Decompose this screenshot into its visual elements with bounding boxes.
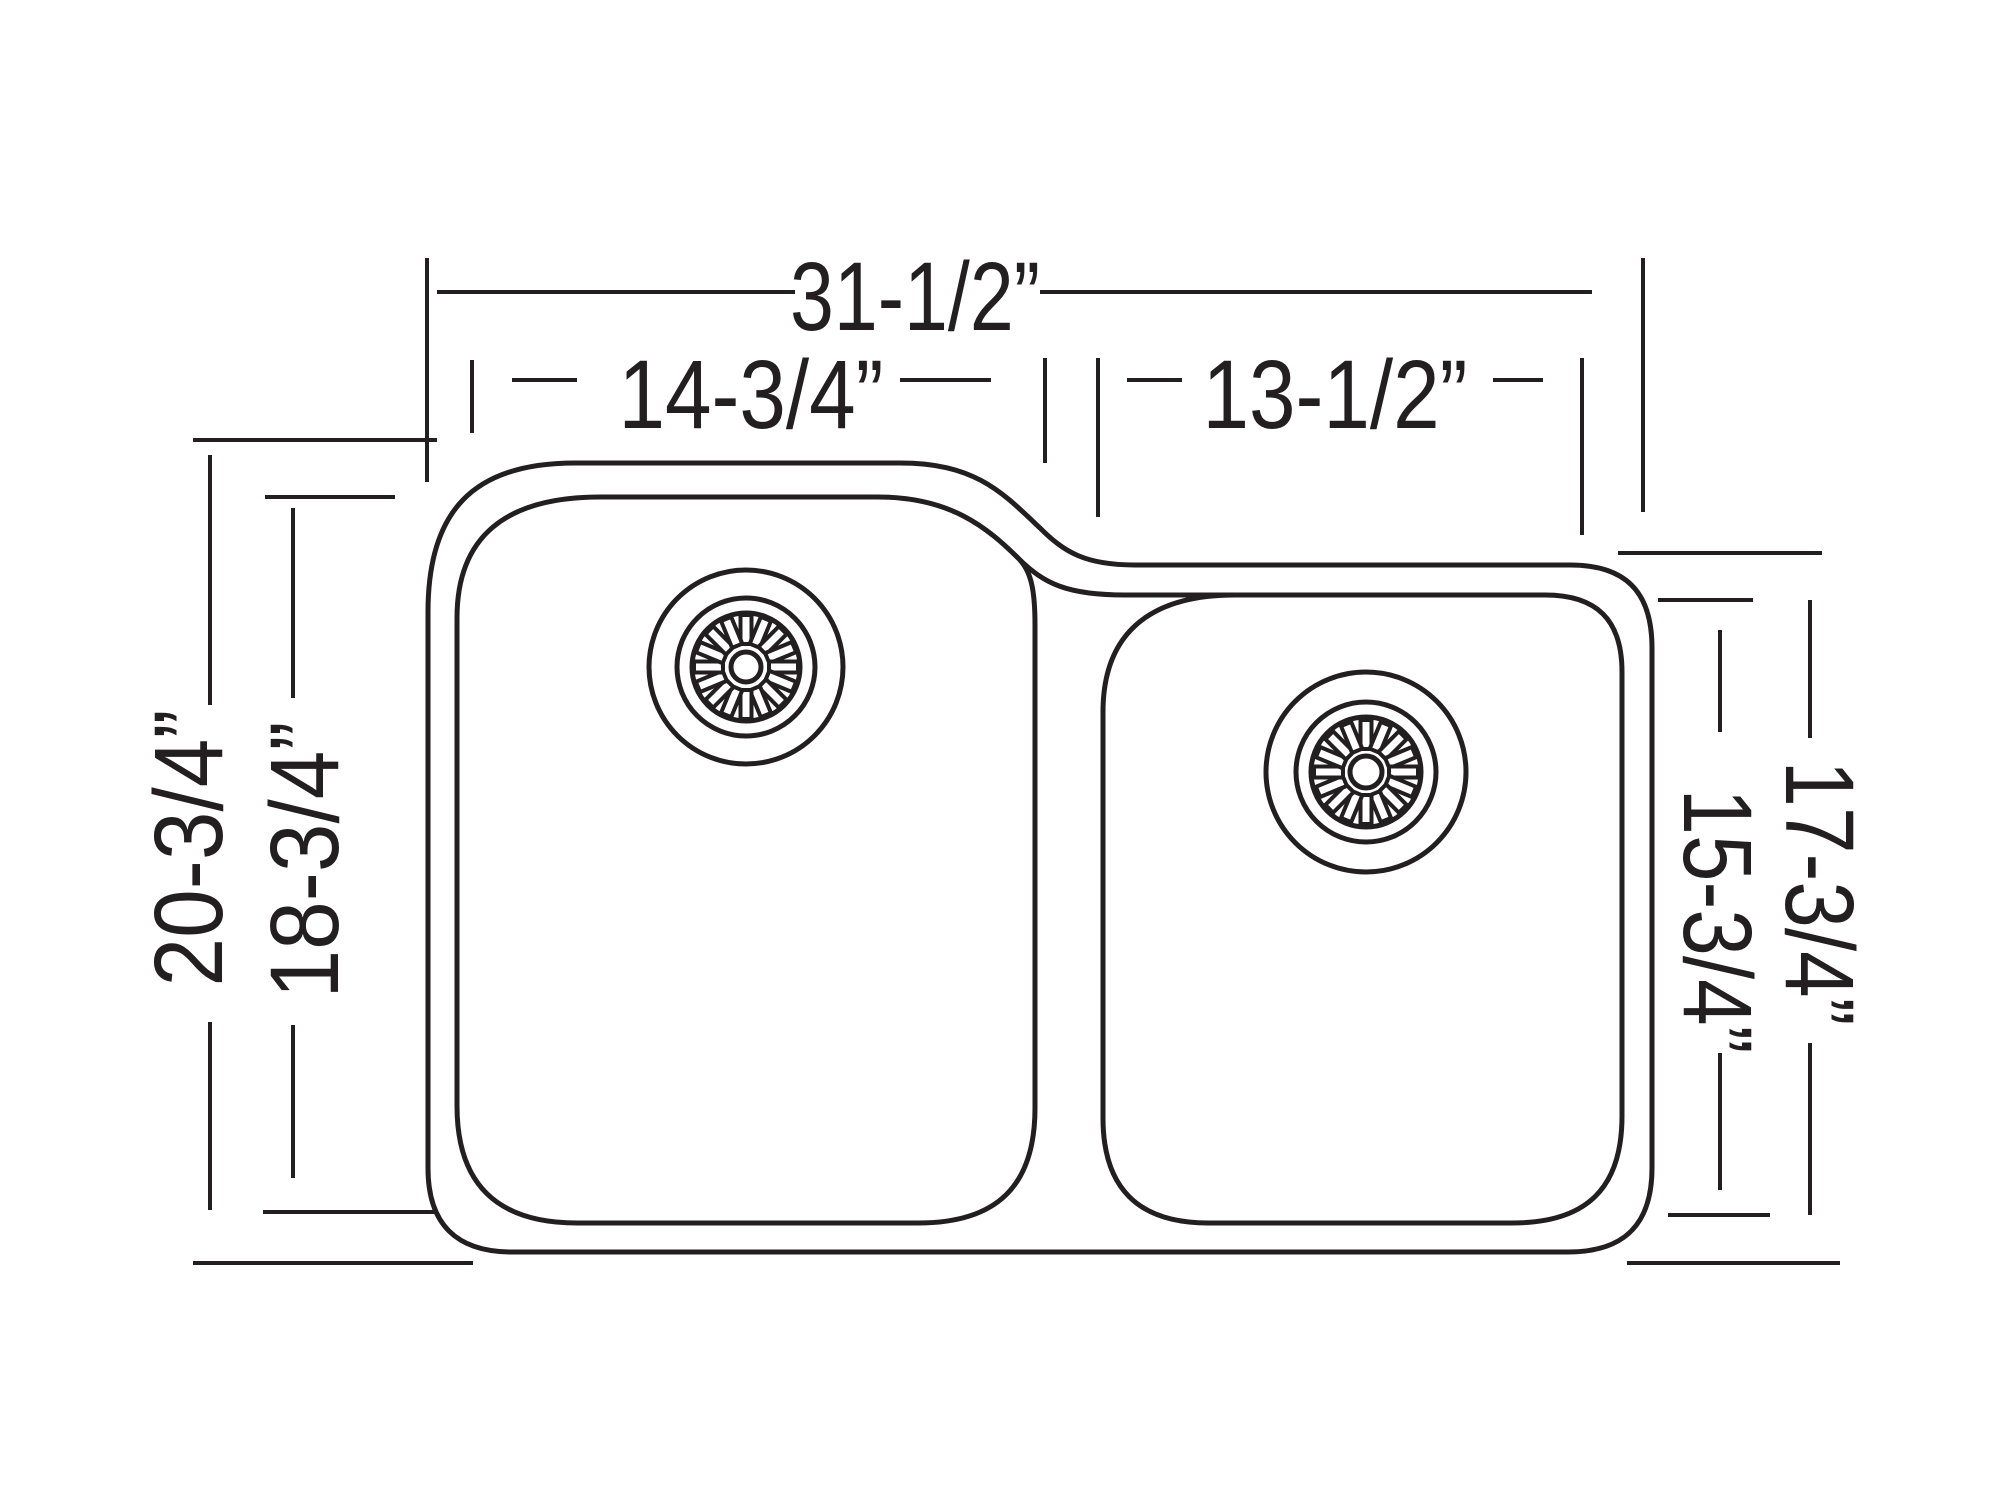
left-bowl-width-label: 14-3/4” xyxy=(619,340,884,449)
dim-left-bowl-width: 14-3/4” xyxy=(472,340,1045,463)
left-drain-center-hole xyxy=(731,652,761,682)
sink-outline xyxy=(428,463,1652,1252)
diagram-canvas: 31-1/2” 14-3/4” 13-1/2” 20-3/4” 18-3/4” … xyxy=(0,0,2000,1500)
right-drain xyxy=(1266,672,1466,872)
dim-right-bowl-depth: 15-3/4” xyxy=(1658,600,1772,1215)
right-bowl-depth-label: 15-3/4” xyxy=(1663,789,1772,1054)
sink-dimension-diagram: 31-1/2” 14-3/4” 13-1/2” 20-3/4” 18-3/4” … xyxy=(0,0,2000,1500)
dim-right-bowl-width: 13-1/2” xyxy=(1098,340,1582,535)
left-bowl-depth-label: 18-3/4” xyxy=(250,722,359,999)
overall-width-label: 31-1/2” xyxy=(790,242,1040,351)
dim-left-bowl-depth: 18-3/4” xyxy=(250,497,437,1212)
sink-outer-rim xyxy=(428,463,1652,1252)
right-outer-depth-label: 17-3/4” xyxy=(1765,761,1874,1026)
right-drain-center-hole xyxy=(1350,756,1382,788)
left-drain xyxy=(649,570,843,764)
right-bowl-opening xyxy=(1103,595,1622,1223)
left-outer-depth-label: 20-3/4” xyxy=(134,710,243,987)
right-bowl-width-label: 13-1/2” xyxy=(1203,340,1468,449)
left-bowl-opening xyxy=(457,497,1035,1223)
